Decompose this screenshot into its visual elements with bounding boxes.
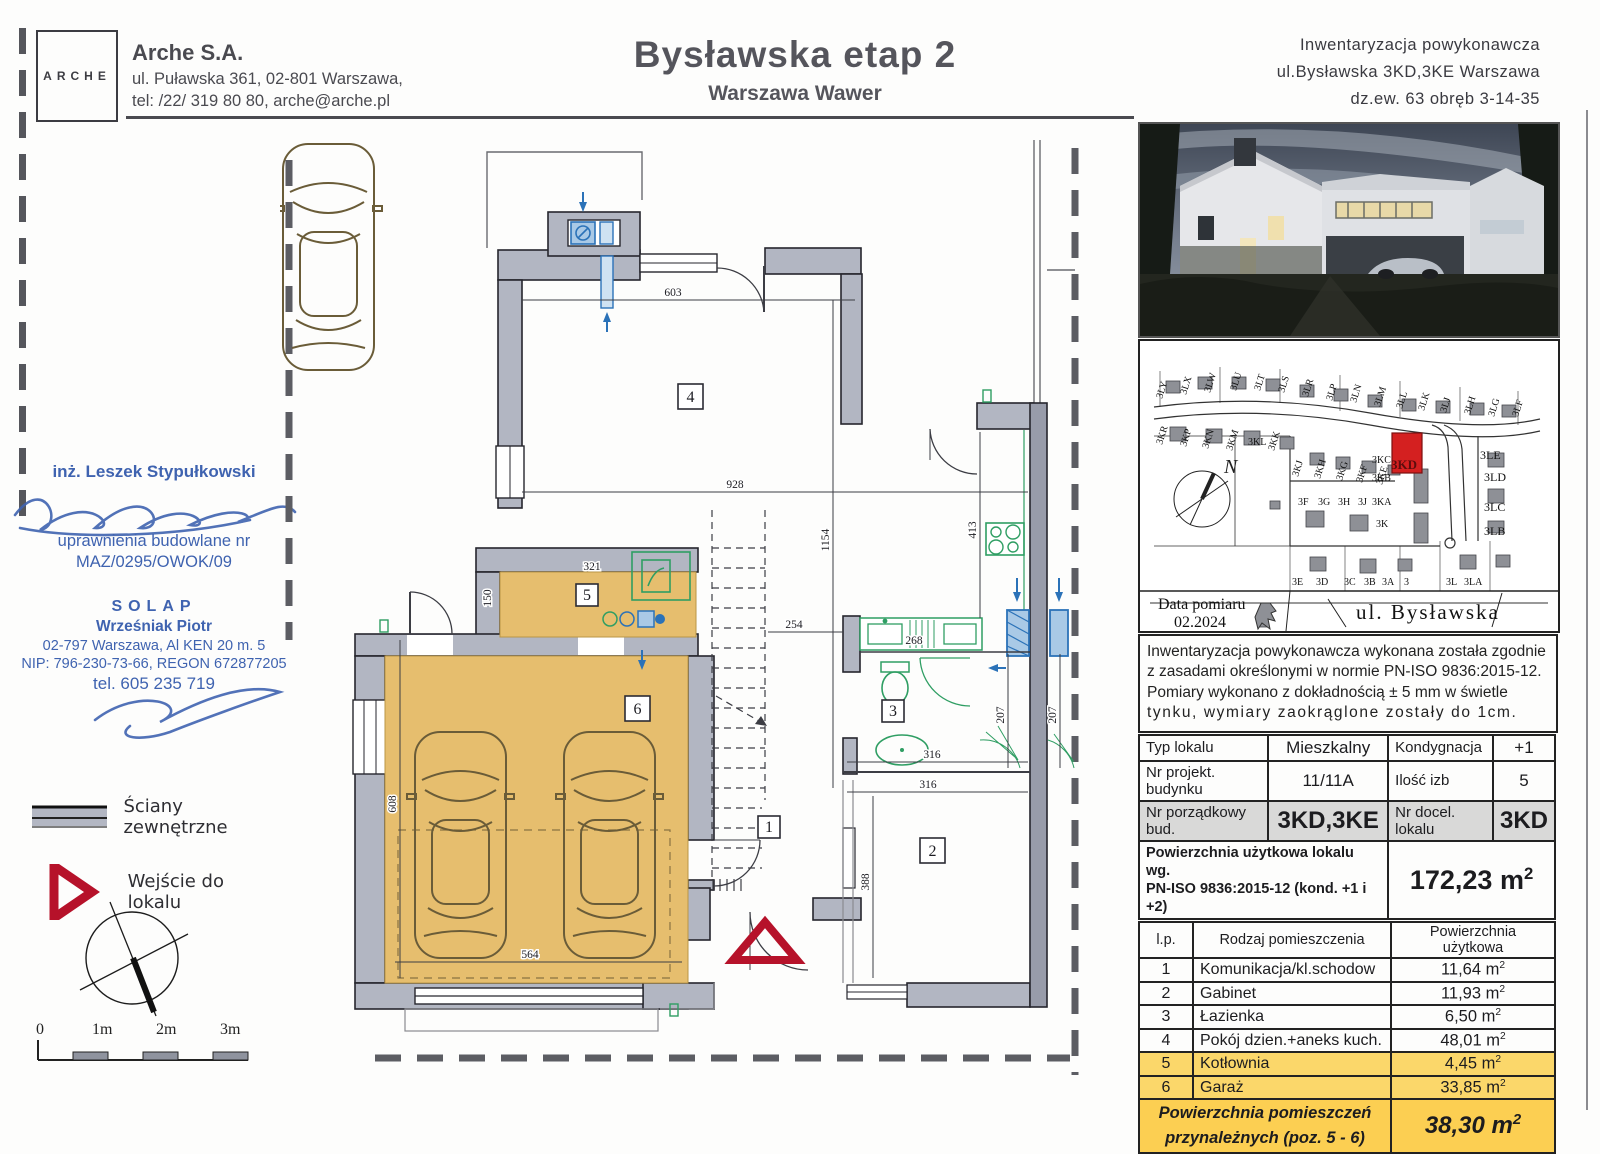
page-subtitle: Warszawa Wawer <box>560 82 1030 106</box>
header-rule <box>126 116 1134 119</box>
inventory-address: ul.Bysławska 3KD,3KE Warszawa <box>1150 59 1540 86</box>
note-line-1: Inwentaryzacja powykonawcza wykonana zos… <box>1147 642 1549 662</box>
highlighted-lot-label: 3KD <box>1391 457 1417 472</box>
attached-area-value: 38,30 m2 <box>1391 1099 1555 1153</box>
lot-label: 3G <box>1318 497 1330 508</box>
lot-label: 3F <box>1298 497 1309 508</box>
firm-address: 02-797 Warszawa, Al KEN 20 m. 5 <box>6 638 302 654</box>
table-row: 1 Komunikacja/kl.schodow 11,64 m2 <box>1139 958 1555 982</box>
info-unitno-label: Nr docel. lokalu <box>1388 801 1493 841</box>
lot-label: 3LA <box>1464 577 1483 588</box>
room-row-name: Garaż <box>1193 1076 1391 1100</box>
rooms-header-area: Powierzchnia użytkowa <box>1391 922 1555 958</box>
kitchen-fixtures <box>860 430 1024 650</box>
room-row-name: Gabinet <box>1193 982 1391 1006</box>
page-title: Bysławska etap 2 <box>560 34 1030 76</box>
attached-area-label: Powierzchnia pomieszczeń przynależnych (… <box>1139 1099 1391 1153</box>
room-row-name: Kotłownia <box>1193 1052 1391 1076</box>
right-panel: N 3LY 3LX 3LW 3LU 3LT 3LS 3LR 3LP 3LN 3L… <box>1138 122 1558 1154</box>
building-photo <box>1138 122 1560 338</box>
note-line-4: tynku, wymiary zaokrąglone zostały do 1c… <box>1147 703 1549 723</box>
room-6-label: 6 <box>634 701 642 718</box>
dim-207a: 207 <box>995 706 1007 724</box>
attached-area-label-line1: Powierzchnia pomieszczeń <box>1146 1101 1384 1126</box>
lot-label: 3C <box>1344 577 1356 588</box>
lot-label: 3KC <box>1372 455 1391 466</box>
room-row-no: 6 <box>1139 1076 1193 1100</box>
room-4-label: 4 <box>687 389 695 406</box>
rooms-footer: Powierzchnia pomieszczeń przynależnych (… <box>1139 1099 1555 1153</box>
permit-number: MAZ/0295/OWOK/09 <box>6 553 302 572</box>
compass-symbol <box>70 900 200 1020</box>
dim-603: 603 <box>664 287 682 299</box>
dim-413: 413 <box>967 521 979 539</box>
firm-phone: tel. 605 235 719 <box>6 674 302 694</box>
info-type-value: Mieszkalny <box>1268 735 1388 761</box>
lot-label: 3 <box>1404 577 1409 588</box>
lot-label: 3KL <box>1248 437 1266 448</box>
room-row-name: Komunikacja/kl.schodow <box>1193 958 1391 982</box>
dim-268: 268 <box>905 635 923 647</box>
scale-3m: 3m <box>220 1021 241 1038</box>
room-row-area: 33,85 m2 <box>1391 1076 1555 1100</box>
info-ordno-label: Nr porządkowy bud. <box>1139 801 1268 841</box>
info-floor-label: Kondygnacja <box>1388 735 1493 761</box>
firm-person: Wrześniak Piotr <box>6 618 302 636</box>
table-row: 2 Gabinet 11,93 m2 <box>1139 982 1555 1006</box>
company-phone: tel: /22/ 319 80 80, arche@arche.pl <box>132 92 552 111</box>
company-name: Arche S.A. <box>132 40 552 66</box>
engineer-name: inż. Leszek Stypułkowski <box>6 462 302 482</box>
arche-logo-text: ARCHE <box>43 69 111 83</box>
arche-logo: ARCHE <box>36 30 118 122</box>
info-unitno-value: 3KD <box>1493 801 1555 841</box>
lot-label: 3KB <box>1372 473 1391 484</box>
dim-608: 608 <box>387 795 399 813</box>
garage-gate <box>415 988 643 1004</box>
info-type-label: Typ lokalu <box>1139 735 1268 761</box>
door-gap-1 <box>407 635 453 655</box>
table-row: 4 Pokój dzien.+aneks kuch. 48,01 m2 <box>1139 1029 1555 1053</box>
map-date-label: Data pomiaru <box>1158 596 1246 613</box>
scale-2m: 2m <box>156 1021 177 1038</box>
lot-label: 3A <box>1382 577 1395 588</box>
page-edge-line <box>1586 110 1588 1110</box>
room-row-no: 4 <box>1139 1029 1193 1053</box>
info-ordno-value: 3KD,3KE <box>1268 801 1388 841</box>
stairs <box>712 510 765 880</box>
door-gap-2 <box>578 635 624 655</box>
header-right-block: Inwentaryzacja powykonawcza ul.Bysławska… <box>1150 32 1540 114</box>
unit-info-table: Typ lokalu Mieszkalny Kondygnacja +1 Nr … <box>1138 734 1556 921</box>
lot-label: 3D <box>1316 577 1328 588</box>
room-row-area: 11,64 m2 <box>1391 958 1555 982</box>
company-address: ul. Puławska 361, 02-801 Warszawa, <box>132 70 552 89</box>
firm-ids: NIP: 796-230-73-66, REGON 672877205 <box>6 656 302 672</box>
lot-label: 3L <box>1446 577 1457 588</box>
car-icon <box>280 144 382 370</box>
room-row-area: 4,45 m2 <box>1391 1052 1555 1076</box>
dim-1154: 1154 <box>820 528 832 551</box>
info-floor-value: +1 <box>1493 735 1555 761</box>
party-wall <box>1030 403 1047 1007</box>
dim-321: 321 <box>583 561 601 573</box>
site-map: N 3LY 3LX 3LW 3LU 3LT 3LS 3LR 3LP 3LN 3L… <box>1138 339 1560 633</box>
table-row-attached: 5 Kotłownia 4,45 m2 <box>1139 1052 1555 1076</box>
dim-316b: 316 <box>919 779 937 791</box>
lot-label: 3B <box>1364 577 1376 588</box>
room-row-area: 11,93 m2 <box>1391 982 1555 1006</box>
room-row-no: 5 <box>1139 1052 1193 1076</box>
dim-388: 388 <box>860 873 872 891</box>
lot-label: 3KA <box>1372 497 1392 508</box>
note-line-2: z zasadami określonymi w normie PN-ISO 9… <box>1147 662 1549 682</box>
exterior-wall-symbol <box>30 802 107 832</box>
lot-label: 3E <box>1292 577 1303 588</box>
lot-label: 3J <box>1358 497 1367 508</box>
usable-area-number: 172,23 <box>1410 865 1493 895</box>
note-line-3: Pomiary wykonano z dokładnością ± 5 mm w… <box>1147 683 1549 703</box>
street-name: ul. Bysławska <box>1356 600 1500 624</box>
floor-plan: 603 928 1154 413 321 150 254 268 316 316… <box>280 140 1080 1080</box>
dim-150: 150 <box>482 589 494 607</box>
dim-316a: 316 <box>923 749 941 761</box>
room-row-no: 2 <box>1139 982 1193 1006</box>
surveyor-stamp: inż. Leszek Stypułkowski uprawnienia bud… <box>6 462 302 694</box>
firm-name: SOLAP <box>6 598 302 616</box>
room-row-area: 6,50 m2 <box>1391 1005 1555 1029</box>
legend-walls-label: Ściany zewnętrzne <box>123 796 260 838</box>
info-projno-label: Nr projekt. budynku <box>1139 761 1268 801</box>
drawing-title-block: Bysławska etap 2 Warszawa Wawer <box>560 34 1030 106</box>
lot-label: 3LD <box>1484 470 1506 484</box>
inventory-plot: dz.ew. 63 obręb 3-14-35 <box>1150 86 1540 113</box>
room-row-no: 3 <box>1139 1005 1193 1029</box>
inventory-type: Inwentaryzacja powykonawcza <box>1150 32 1540 59</box>
lot-label: 3K <box>1376 519 1389 530</box>
neighbor-wall-dashes-left <box>19 28 26 520</box>
room-2-label: 2 <box>929 843 937 860</box>
rooms-header-no: l.p. <box>1139 922 1193 958</box>
usable-area-label: Powierzchnia użytkowa lokalu wg. PN-ISO … <box>1139 841 1388 920</box>
room-5-label: 5 <box>583 587 591 604</box>
radiator-icons <box>988 578 1068 672</box>
table-row: 3 Łazienka 6,50 m2 <box>1139 1005 1555 1029</box>
map-date-value: 02.2024 <box>1174 614 1226 631</box>
dim-207b: 207 <box>1047 706 1059 724</box>
usable-area-label-line2: PN-ISO 9836:2015-12 (kond. +1 i +2) <box>1146 880 1381 916</box>
table-row-attached: 6 Garaż 33,85 m2 <box>1139 1076 1555 1100</box>
dim-254: 254 <box>785 619 803 631</box>
room-row-name: Pokój dzien.+aneks kuch. <box>1193 1029 1391 1053</box>
survey-note: Inwentaryzacja powykonawcza wykonana zos… <box>1138 634 1558 733</box>
lot-label: 3LB <box>1484 524 1505 538</box>
room-3-label: 3 <box>889 703 897 720</box>
room-row-name: Łazienka <box>1193 1005 1391 1029</box>
dim-928: 928 <box>726 479 744 491</box>
rooms-header-name: Rodzaj pomieszczenia <box>1193 922 1391 958</box>
info-projno-value: 11/11A <box>1268 761 1388 801</box>
lot-label: 3LE <box>1480 448 1501 462</box>
scale-bar: 0 1m 2m 3m <box>30 1018 260 1070</box>
lot-label: 3H <box>1338 497 1350 508</box>
usable-area-unit: m2 <box>1500 865 1533 895</box>
entrance-marker <box>713 879 797 960</box>
rooms-table: l.p. Rodzaj pomieszczenia Powierzchnia u… <box>1138 921 1556 1154</box>
scale-0: 0 <box>36 1021 44 1038</box>
usable-area-label-line1: Powierzchnia użytkowa lokalu wg. <box>1146 844 1381 880</box>
info-rooms-label: Ilość izb <box>1388 761 1493 801</box>
compass-north: N <box>1223 456 1239 478</box>
dim-564: 564 <box>521 949 539 961</box>
info-rooms-value: 5 <box>1493 761 1555 801</box>
permit-label: uprawnienia budowlane nr <box>6 532 302 551</box>
scale-1m: 1m <box>92 1021 113 1038</box>
company-block: Arche S.A. ul. Puławska 361, 02-801 Wars… <box>132 40 552 111</box>
usable-area-value: 172,23 m2 <box>1388 841 1555 920</box>
room-1-label: 1 <box>765 819 773 836</box>
lot-label: 3LC <box>1484 500 1505 514</box>
room-row-area: 48,01 m2 <box>1391 1029 1555 1053</box>
room-row-no: 1 <box>1139 958 1193 982</box>
